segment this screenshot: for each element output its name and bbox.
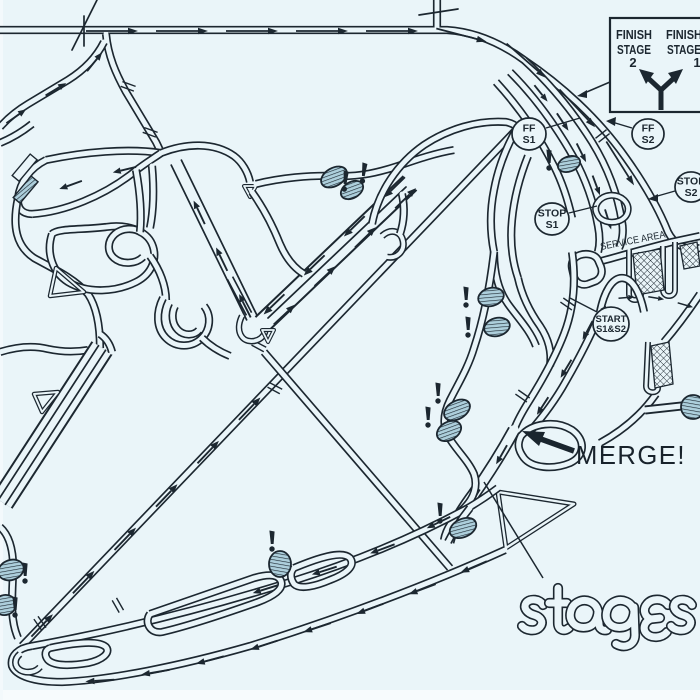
svg-text:S2: S2 (642, 134, 655, 146)
svg-text:2: 2 (629, 55, 636, 70)
svg-text:MERGE!: MERGE! (576, 440, 686, 470)
svg-text:S1&S2: S1&S2 (596, 324, 626, 335)
svg-text:FF: FF (523, 123, 536, 135)
svg-text:1: 1 (693, 55, 700, 70)
svg-text:FF: FF (642, 123, 655, 135)
svg-text:FINISH: FINISH (616, 27, 652, 42)
svg-text:S1: S1 (523, 134, 536, 146)
svg-text:S2: S2 (685, 187, 698, 199)
svg-text:S1: S1 (546, 219, 559, 231)
svg-text:STOP: STOP (538, 208, 566, 220)
svg-text:STOP: STOP (677, 176, 700, 188)
svg-text:FINISH: FINISH (666, 27, 700, 42)
